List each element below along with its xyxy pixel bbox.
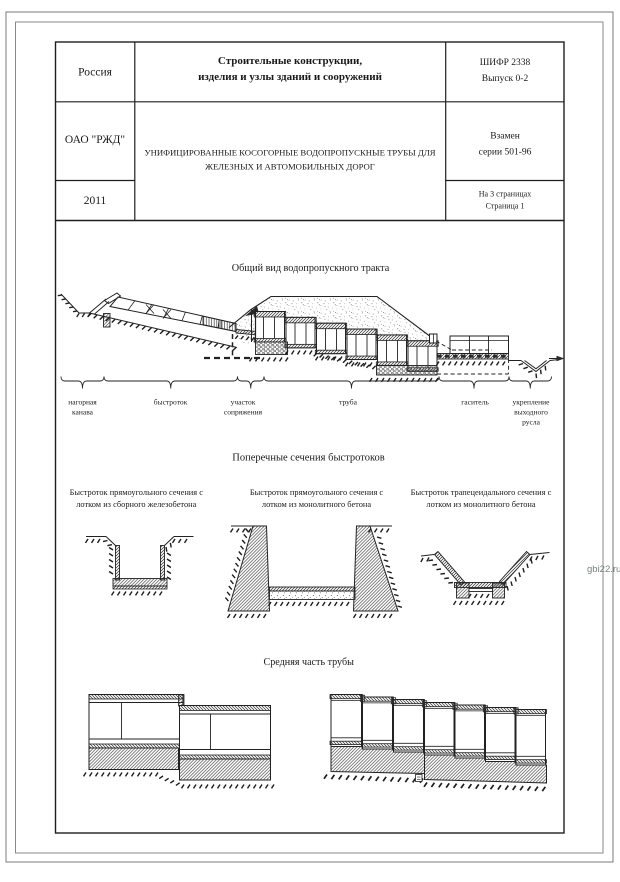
- svg-text:выходного: выходного: [514, 408, 548, 417]
- svg-text:УНИФИЦИРОВАННЫЕ КОСОГОРНЫЕ ВОД: УНИФИЦИРОВАННЫЕ КОСОГОРНЫЕ ВОДОПРОПУСКНЫ…: [144, 148, 435, 158]
- svg-text:Быстроток трапецеидального сеч: Быстроток трапецеидального сечения с: [411, 488, 552, 497]
- svg-text:Страница 1: Страница 1: [486, 202, 525, 211]
- svg-text:нагорная: нагорная: [68, 398, 97, 407]
- svg-text:ЖЕЛЕЗНЫХ И АВТОМОБИЛЬНЫХ ДОРОГ: ЖЕЛЕЗНЫХ И АВТОМОБИЛЬНЫХ ДОРОГ: [205, 162, 375, 172]
- svg-text:канава: канава: [72, 408, 94, 417]
- svg-text:изделия и узлы зданий и сооруж: изделия и узлы зданий и сооружений: [198, 71, 382, 83]
- svg-text:быстроток: быстроток: [154, 398, 188, 407]
- svg-text:Общий вид водопропускного трак: Общий вид водопропускного тракта: [232, 263, 390, 274]
- svg-text:русла: русла: [522, 418, 540, 427]
- svg-text:труба: труба: [339, 398, 357, 407]
- svg-text:участок: участок: [231, 398, 256, 407]
- svg-text:укрепление: укрепление: [513, 398, 551, 407]
- svg-text:Выпуск 0-2: Выпуск 0-2: [482, 74, 529, 84]
- svg-text:Средняя часть трубы: Средняя часть трубы: [264, 657, 355, 668]
- svg-text:Быстроток прямоугольного сечен: Быстроток прямоугольного сечения с: [250, 488, 384, 497]
- svg-text:сопряжения: сопряжения: [224, 408, 263, 417]
- svg-text:лотком из монолитного бетона: лотком из монолитного бетона: [426, 500, 535, 509]
- svg-text:Строительные конструкции,: Строительные конструкции,: [218, 55, 362, 67]
- svg-text:Поперечные сечения быстротоков: Поперечные сечения быстротоков: [232, 453, 384, 464]
- svg-text:ШИФР 2338: ШИФР 2338: [480, 58, 531, 68]
- svg-text:Взамен: Взамен: [490, 132, 520, 142]
- svg-text:На 3 страницах: На 3 страницах: [479, 190, 531, 199]
- svg-text:Быстроток прямоугольного сечен: Быстроток прямоугольного сечения с: [70, 488, 204, 497]
- svg-text:лотком из монолитного бетона: лотком из монолитного бетона: [262, 500, 371, 509]
- svg-text:2011: 2011: [84, 195, 107, 207]
- svg-text:серии 501-96: серии 501-96: [479, 148, 532, 158]
- svg-text:гаситель: гаситель: [461, 398, 489, 407]
- svg-text:gbi22.ru: gbi22.ru: [587, 564, 620, 575]
- svg-text:лотком из сборного железобетон: лотком из сборного железобетона: [76, 500, 196, 509]
- svg-text:ОАО "РЖД": ОАО "РЖД": [65, 134, 125, 146]
- svg-text:Россия: Россия: [78, 67, 113, 79]
